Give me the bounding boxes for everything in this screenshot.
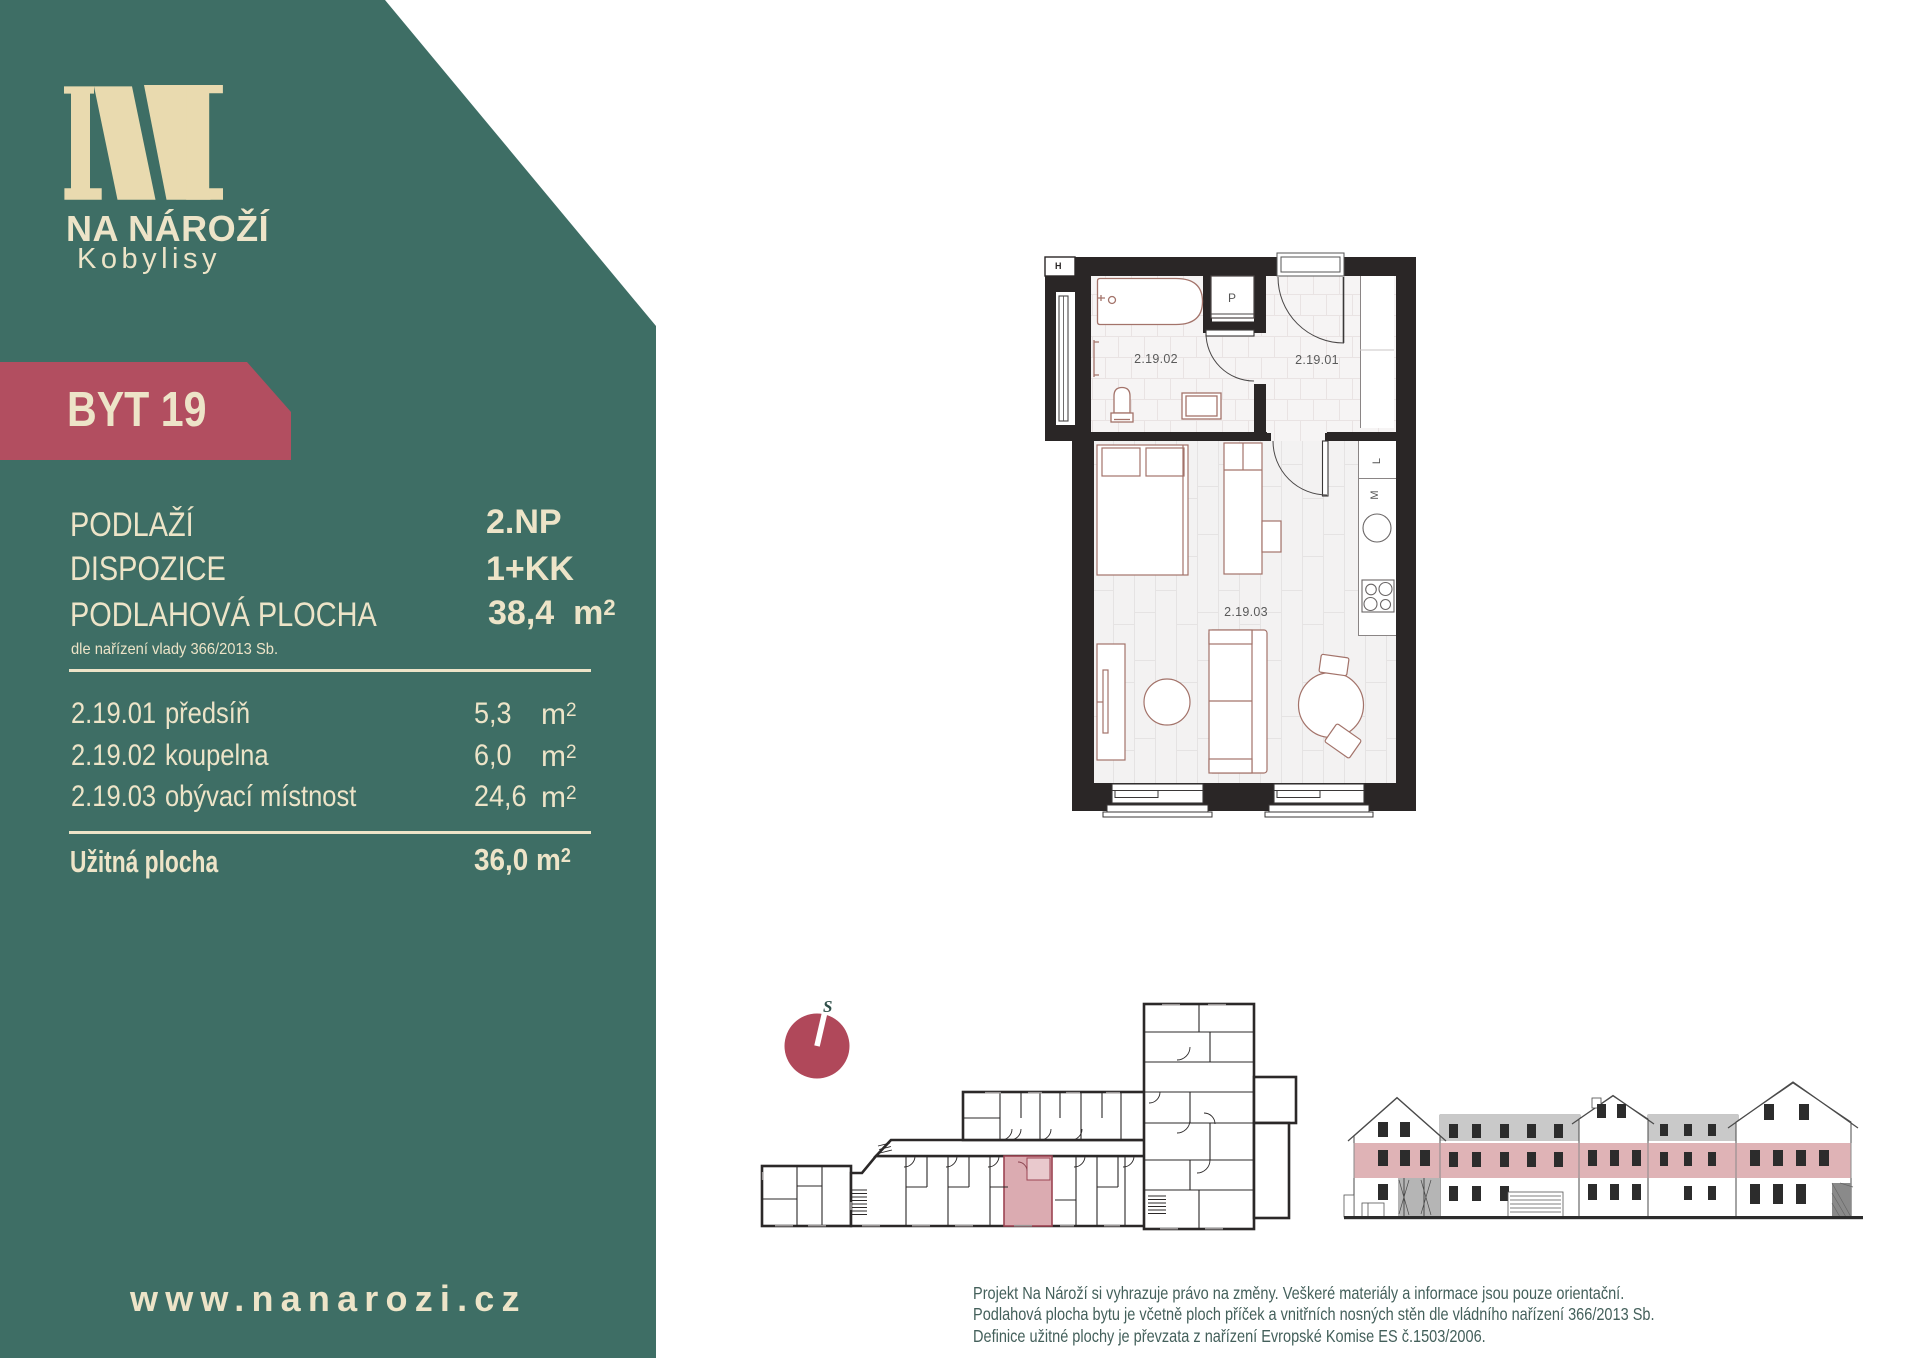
svg-text:P: P — [1228, 291, 1236, 305]
svg-text:M: M — [1369, 490, 1381, 499]
svg-text:H: H — [1055, 261, 1062, 271]
svg-text:2.19.02: 2.19.02 — [1134, 352, 1178, 366]
svg-text:2.19.01: 2.19.01 — [1295, 353, 1339, 367]
svg-text:2.19.03: 2.19.03 — [1224, 605, 1268, 619]
svg-text:L: L — [1371, 458, 1383, 464]
